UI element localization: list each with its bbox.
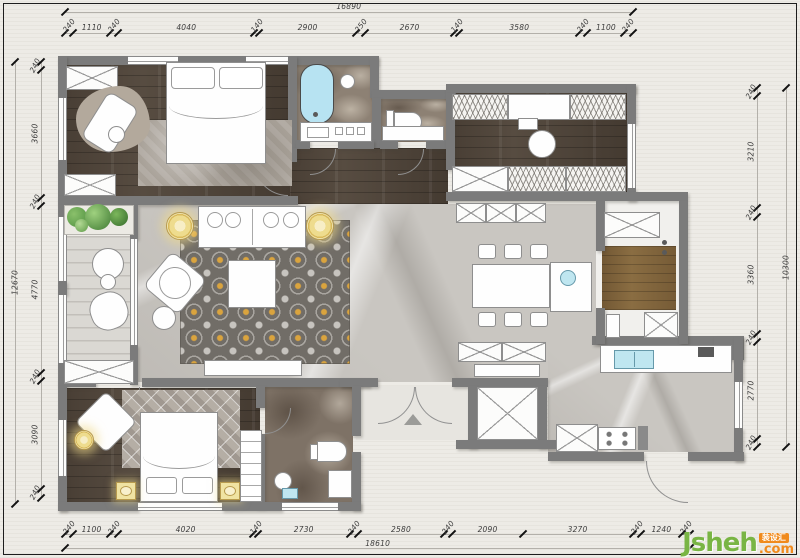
- dimension-label: 3660: [31, 120, 40, 148]
- dimension-label: 4040: [172, 23, 200, 32]
- dimension-label: 2900: [294, 23, 322, 32]
- dimension-label: 2730: [290, 525, 318, 534]
- dimension-tick: [782, 443, 791, 452]
- dimension-total-label: 10300: [782, 247, 791, 287]
- dimension-tick: [11, 500, 20, 509]
- dimension-label: 2090: [474, 525, 502, 534]
- dimension-label: 3360: [747, 261, 756, 289]
- watermark-brand: Jsheh: [682, 530, 757, 556]
- dimension-label: 1240: [647, 525, 675, 534]
- dimension-label: 3090: [31, 421, 40, 449]
- dimension-label: 3580: [505, 23, 533, 32]
- dimension-label: 4020: [172, 525, 200, 534]
- dimension-label: 3210: [747, 138, 756, 166]
- dimension-label: 240: [25, 478, 45, 507]
- dimension-line: [41, 62, 42, 498]
- dimension-line: [65, 534, 690, 535]
- dimension-label: 4770: [31, 275, 40, 303]
- page: { "document": { "type": "interior-design…: [0, 0, 800, 558]
- dimension-total-line: [65, 548, 690, 549]
- watermark: Jsheh 装设汇 .com: [682, 530, 794, 556]
- watermark-tld: .com: [759, 543, 794, 556]
- dimension-label: 1100: [78, 525, 106, 534]
- dimension-label: 240: [741, 198, 761, 227]
- dimension-line: [757, 88, 758, 447]
- dimension-annotations: 2401110240404014029002502670140358024011…: [0, 0, 800, 558]
- dimension-label: 2770: [747, 376, 756, 404]
- dimension-label: 1100: [592, 23, 620, 32]
- dimension-total-label: 16890: [329, 2, 369, 11]
- dimension-label: 2670: [396, 23, 424, 32]
- dimension-label: 3270: [564, 525, 592, 534]
- dimension-total-label: 18610: [358, 539, 398, 548]
- dimension-label: 2580: [387, 525, 415, 534]
- dimension-total-label: 12670: [11, 263, 20, 303]
- dimension-label: 1110: [78, 23, 106, 32]
- dimension-total-line: [65, 12, 633, 13]
